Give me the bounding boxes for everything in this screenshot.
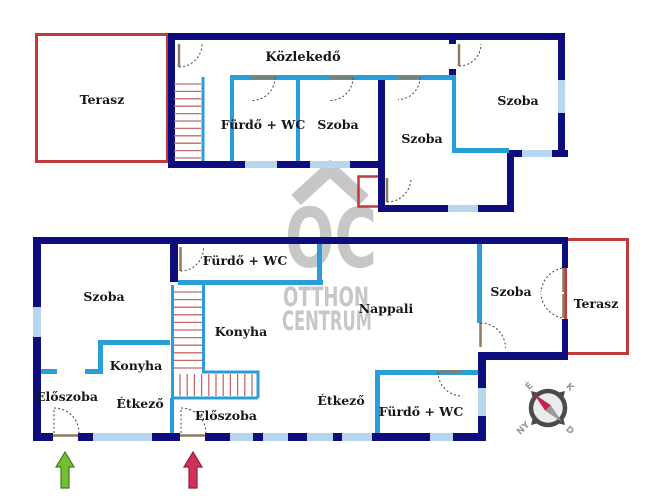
room-label-upper-furdo: Fürdő + WC xyxy=(221,117,306,132)
entrance-arrow-green-icon xyxy=(56,452,74,488)
room-label-lower-furdo-top: Fürdő + WC xyxy=(203,253,288,268)
room-label-kozlekedo: Közlekedő xyxy=(265,50,341,65)
compass-label-north: É xyxy=(523,380,536,393)
floorplan-svg: OC OTTHON CENTRUM xyxy=(0,0,649,500)
room-label-upper-szoba-b: Szoba xyxy=(401,131,442,146)
room-label-lower-konyha-a: Konyha xyxy=(110,358,162,373)
room-label-nappali: Nappali xyxy=(359,301,414,316)
room-label-lower-furdo-b: Fürdő + WC xyxy=(379,404,464,419)
room-label-upper-terasz: Terasz xyxy=(80,92,125,107)
room-label-lower-szoba-a: Szoba xyxy=(83,289,124,304)
compass-rose: É K NY D xyxy=(514,374,582,442)
room-label-lower-konyha-b: Konyha xyxy=(215,324,267,339)
upper-stairs xyxy=(174,77,203,161)
floorplan-page: OC OTTHON CENTRUM xyxy=(0,0,649,500)
compass-label-west: NY xyxy=(515,420,532,437)
compass-label-south: D xyxy=(563,425,575,437)
compass-label-east: K xyxy=(563,382,576,395)
room-label-lower-terasz: Terasz xyxy=(574,296,619,311)
room-label-lower-etkezo-b: Étkező xyxy=(317,393,364,408)
room-label-lower-etkezo-a: Étkező xyxy=(116,396,163,411)
lower-stairs xyxy=(173,285,259,398)
room-label-lower-eloszoba-b: Előszoba xyxy=(195,408,257,423)
entrance-arrow-red-icon xyxy=(184,452,202,488)
room-label-upper-szoba-a: Szoba xyxy=(317,117,358,132)
room-label-upper-szoba-c: Szoba xyxy=(497,93,538,108)
room-label-lower-szoba-b: Szoba xyxy=(490,284,531,299)
room-label-lower-eloszoba-a: Előszoba xyxy=(36,389,98,404)
